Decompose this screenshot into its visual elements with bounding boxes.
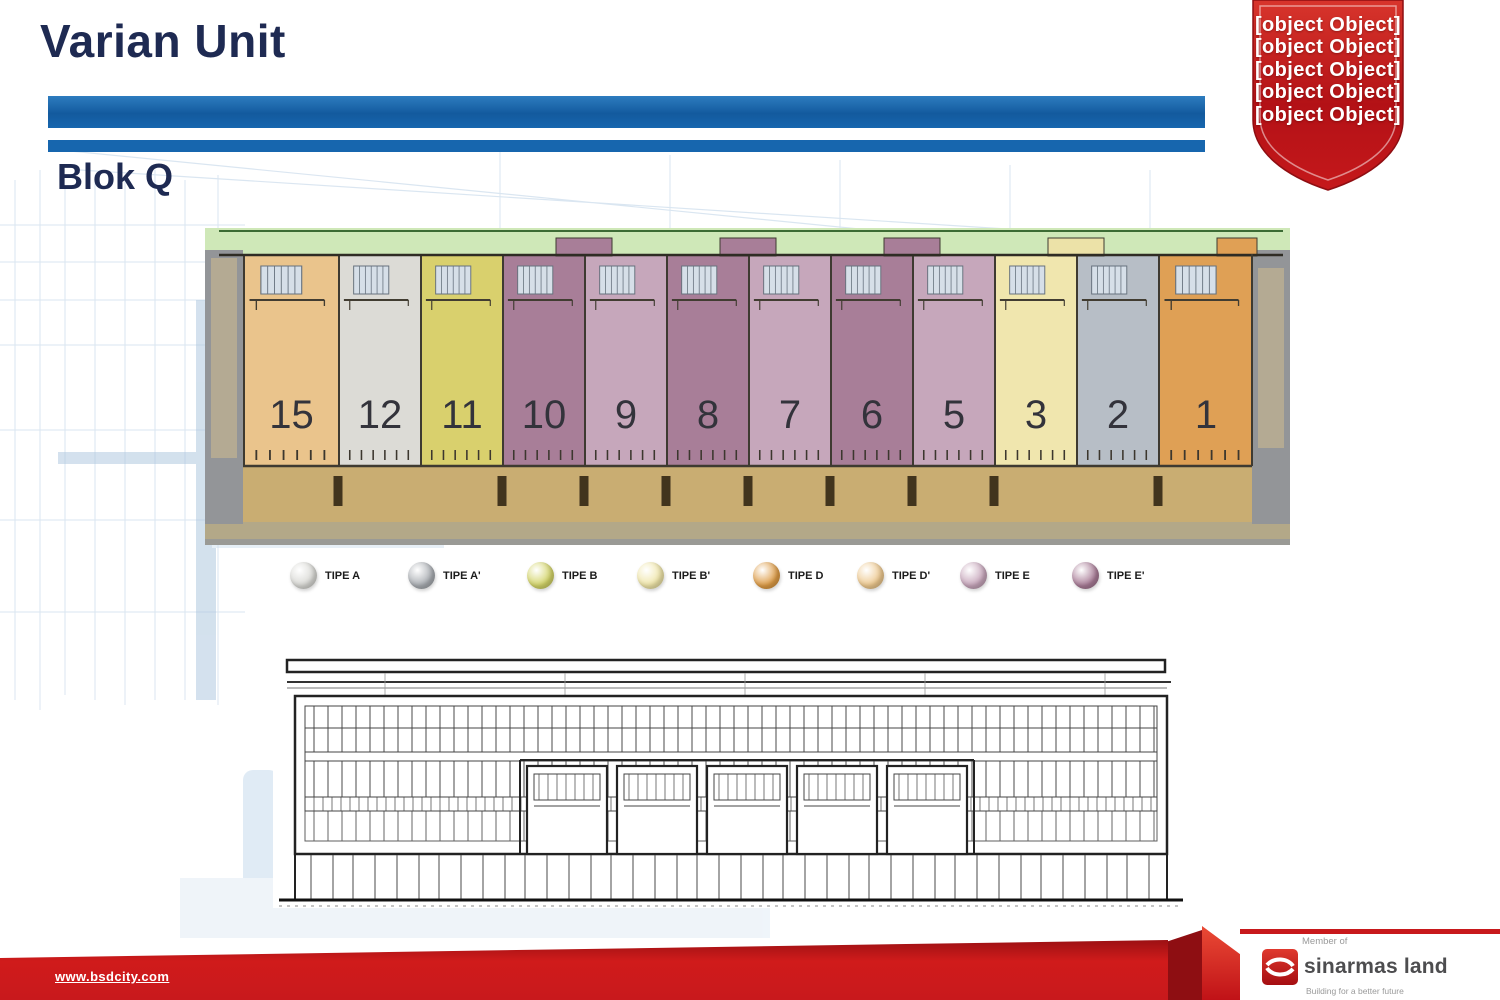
unit-number: 6 bbox=[832, 393, 912, 438]
legend-label: TIPE B bbox=[562, 570, 597, 582]
floorplan-unit: 6 bbox=[830, 254, 912, 466]
slide: Varian Unit Blok Q [object Object] [obje… bbox=[0, 0, 1500, 1000]
unit-number: 7 bbox=[750, 393, 830, 438]
badge-line: [object Object] bbox=[1255, 14, 1401, 36]
badge-line: [object Object] bbox=[1255, 59, 1401, 81]
footer-red-line bbox=[1240, 929, 1500, 934]
legend-color-swatch bbox=[857, 562, 884, 589]
legend-color-swatch bbox=[408, 562, 435, 589]
floorplan: 15 12 bbox=[205, 228, 1290, 545]
unit-type-legend: TIPE A TIPE A' TIPE B TIPE B' TIPE D bbox=[0, 562, 1500, 606]
legend-color-swatch bbox=[527, 562, 554, 589]
legend-color-swatch bbox=[637, 562, 664, 589]
title-rule-thick bbox=[48, 96, 1205, 128]
brand-tagline: Building for a better future bbox=[1306, 986, 1497, 996]
legend-label: TIPE E' bbox=[1107, 570, 1144, 582]
unit-number: 9 bbox=[586, 393, 666, 438]
legend-label: TIPE D' bbox=[892, 570, 930, 582]
floorplan-unit: 1 bbox=[1158, 254, 1252, 466]
footer-ribbon-fold-dark bbox=[1168, 930, 1202, 1000]
legend-label: TIPE E bbox=[995, 570, 1030, 582]
building-elevation-drawing bbox=[265, 648, 1215, 918]
title-rule-thin bbox=[48, 140, 1205, 152]
badge-text: [object Object] [object Object] [object … bbox=[1247, 0, 1409, 126]
page-title: Varian Unit bbox=[40, 14, 286, 68]
floorplan-unit: 8 bbox=[666, 254, 748, 466]
badge-line: [object Object] bbox=[1255, 81, 1401, 103]
badge-line: [object Object] bbox=[1255, 36, 1401, 58]
floorplan-unit: 5 bbox=[912, 254, 994, 466]
floorplan-units: 15 12 bbox=[205, 254, 1290, 466]
legend-color-swatch bbox=[960, 562, 987, 589]
member-of-label: Member of bbox=[1302, 936, 1497, 947]
unit-number: 5 bbox=[914, 393, 994, 438]
legend-item: TIPE E bbox=[960, 562, 1030, 589]
floorplan-unit: 10 bbox=[502, 254, 584, 466]
legend-item: TIPE D' bbox=[857, 562, 930, 589]
floorplan-unit: 12 bbox=[338, 254, 420, 466]
unit-number: 3 bbox=[996, 393, 1076, 438]
unit-number: 10 bbox=[504, 393, 584, 438]
unit-number: 8 bbox=[668, 393, 748, 438]
legend-item: TIPE B' bbox=[637, 562, 710, 589]
unit-number: 15 bbox=[245, 393, 338, 438]
floorplan-unit: 15 bbox=[243, 254, 338, 466]
unit-number: 1 bbox=[1160, 393, 1252, 438]
badge-line: [object Object] bbox=[1255, 104, 1401, 126]
legend-item: TIPE D bbox=[753, 562, 823, 589]
floorplan-unit: 7 bbox=[748, 254, 830, 466]
floorplan-unit: 11 bbox=[420, 254, 502, 466]
legend-label: TIPE B' bbox=[672, 570, 710, 582]
legend-item: TIPE A' bbox=[408, 562, 481, 589]
unit-number: 11 bbox=[422, 393, 502, 438]
floorplan-unit: 9 bbox=[584, 254, 666, 466]
block-label: Blok Q bbox=[57, 156, 173, 198]
unit-number: 12 bbox=[340, 393, 420, 438]
legend-item: TIPE A bbox=[290, 562, 360, 589]
website-link[interactable]: www.bsdcity.com bbox=[55, 969, 169, 984]
legend-color-swatch bbox=[1072, 562, 1099, 589]
unit-number: 2 bbox=[1078, 393, 1158, 438]
legend-label: TIPE A bbox=[325, 570, 360, 582]
sinarmas-land-logo-block: Member of sinarmas land Building for a b… bbox=[1262, 936, 1497, 996]
sinarmas-logo-icon bbox=[1262, 949, 1298, 985]
bsd-city-badge: [object Object] [object Object] [object … bbox=[1247, 0, 1409, 198]
brand-name: sinarmas land bbox=[1304, 955, 1448, 979]
legend-label: TIPE D bbox=[788, 570, 823, 582]
floorplan-unit: 2 bbox=[1076, 254, 1158, 466]
legend-color-swatch bbox=[290, 562, 317, 589]
legend-color-swatch bbox=[753, 562, 780, 589]
legend-label: TIPE A' bbox=[443, 570, 481, 582]
legend-item: TIPE B bbox=[527, 562, 597, 589]
floorplan-unit: 3 bbox=[994, 254, 1076, 466]
legend-item: TIPE E' bbox=[1072, 562, 1144, 589]
